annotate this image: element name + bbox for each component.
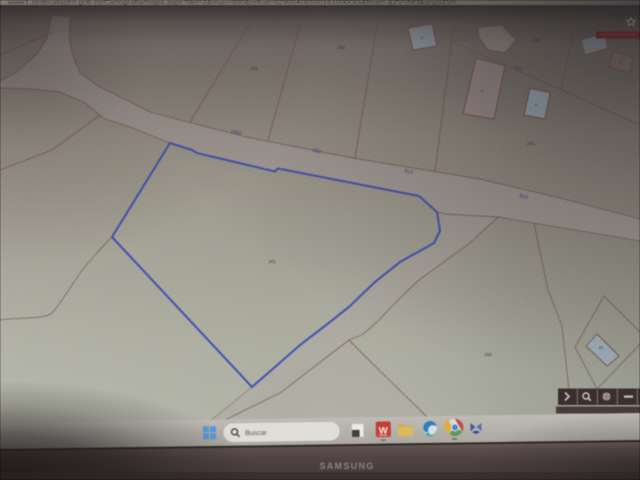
- svg-text:SAMSUNG: SAMSUNG: [319, 461, 374, 471]
